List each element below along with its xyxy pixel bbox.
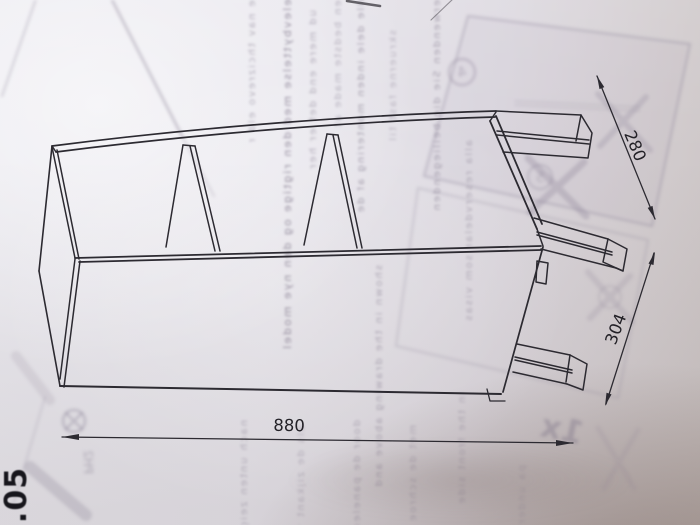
leg-top-front: [534, 218, 608, 239]
arrowhead-icon: [605, 393, 612, 406]
dim-length-line: [62, 437, 573, 443]
stray-photo-marks: [347, 0, 454, 20]
leg-bottom-back: [517, 344, 570, 355]
dim-length-label: 880: [273, 416, 305, 436]
arrowhead-icon: [62, 434, 79, 440]
photographed-manual-page: 1x PH2 4 5 ne nav thcizrevo eld nav nele…: [0, 0, 700, 525]
arrowhead-icon: [597, 76, 604, 89]
page-number: .05: [0, 455, 33, 525]
furniture-line-drawing: 880 304 280: [0, 0, 700, 525]
arrowhead-icon: [556, 440, 573, 446]
shelf-body: [39, 111, 543, 401]
arrowhead-icon: [648, 206, 655, 219]
arrowhead-icon: [649, 252, 656, 265]
divider-panels: [166, 134, 362, 251]
